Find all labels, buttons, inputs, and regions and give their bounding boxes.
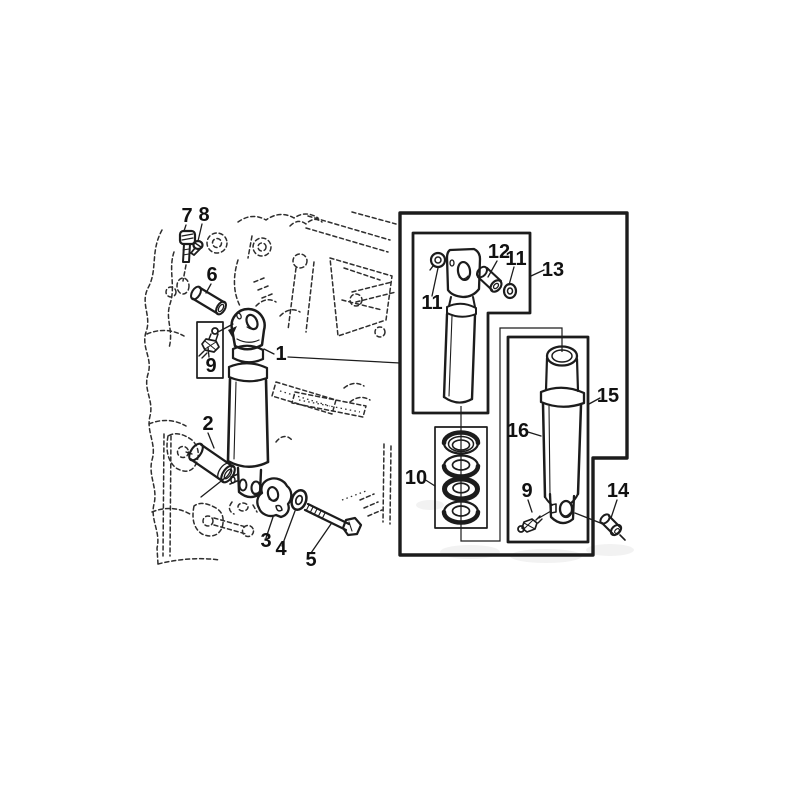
callout-11-left: 11 [421,292,442,314]
callout-14: 14 [607,480,630,502]
cylinder-part-16 [541,347,584,524]
callout-11-right: 11 [505,248,526,270]
callout-15: 15 [597,385,619,407]
bolt-part-7 [180,231,195,281]
callout-2: 2 [202,413,213,435]
callout-10: 10 [405,467,427,489]
callout-9-main: 9 [205,355,216,377]
pin-part-2 [186,441,238,497]
callout-4: 4 [275,538,287,560]
cylinder-rod-detail-13 [444,249,480,403]
bracket-part-3 [257,478,291,517]
callout-7: 7 [181,205,192,227]
callout-6: 6 [206,264,217,286]
callout-8: 8 [198,204,209,226]
engine-phantom-outline [145,212,396,564]
bolt-part-5 [305,504,361,535]
washer-part-11-left [430,253,445,270]
callout-5: 5 [305,549,316,571]
parts-diagram-canvas: 7 8 6 9 1 2 3 4 5 11 12 11 13 10 16 15 9… [0,0,800,800]
washer-part-11-right [504,284,516,298]
callout-3: 3 [260,530,271,552]
bushing-part-14 [575,513,625,540]
grease-fitting-part-9-detail [518,511,551,532]
callout-1: 1 [275,343,286,365]
callout-16: 16 [507,420,529,442]
callout-9-detail: 9 [521,480,532,502]
callout-13: 13 [542,259,564,281]
parts-diagram-page: 7 8 6 9 1 2 3 4 5 11 12 11 13 10 16 15 9… [0,0,800,800]
